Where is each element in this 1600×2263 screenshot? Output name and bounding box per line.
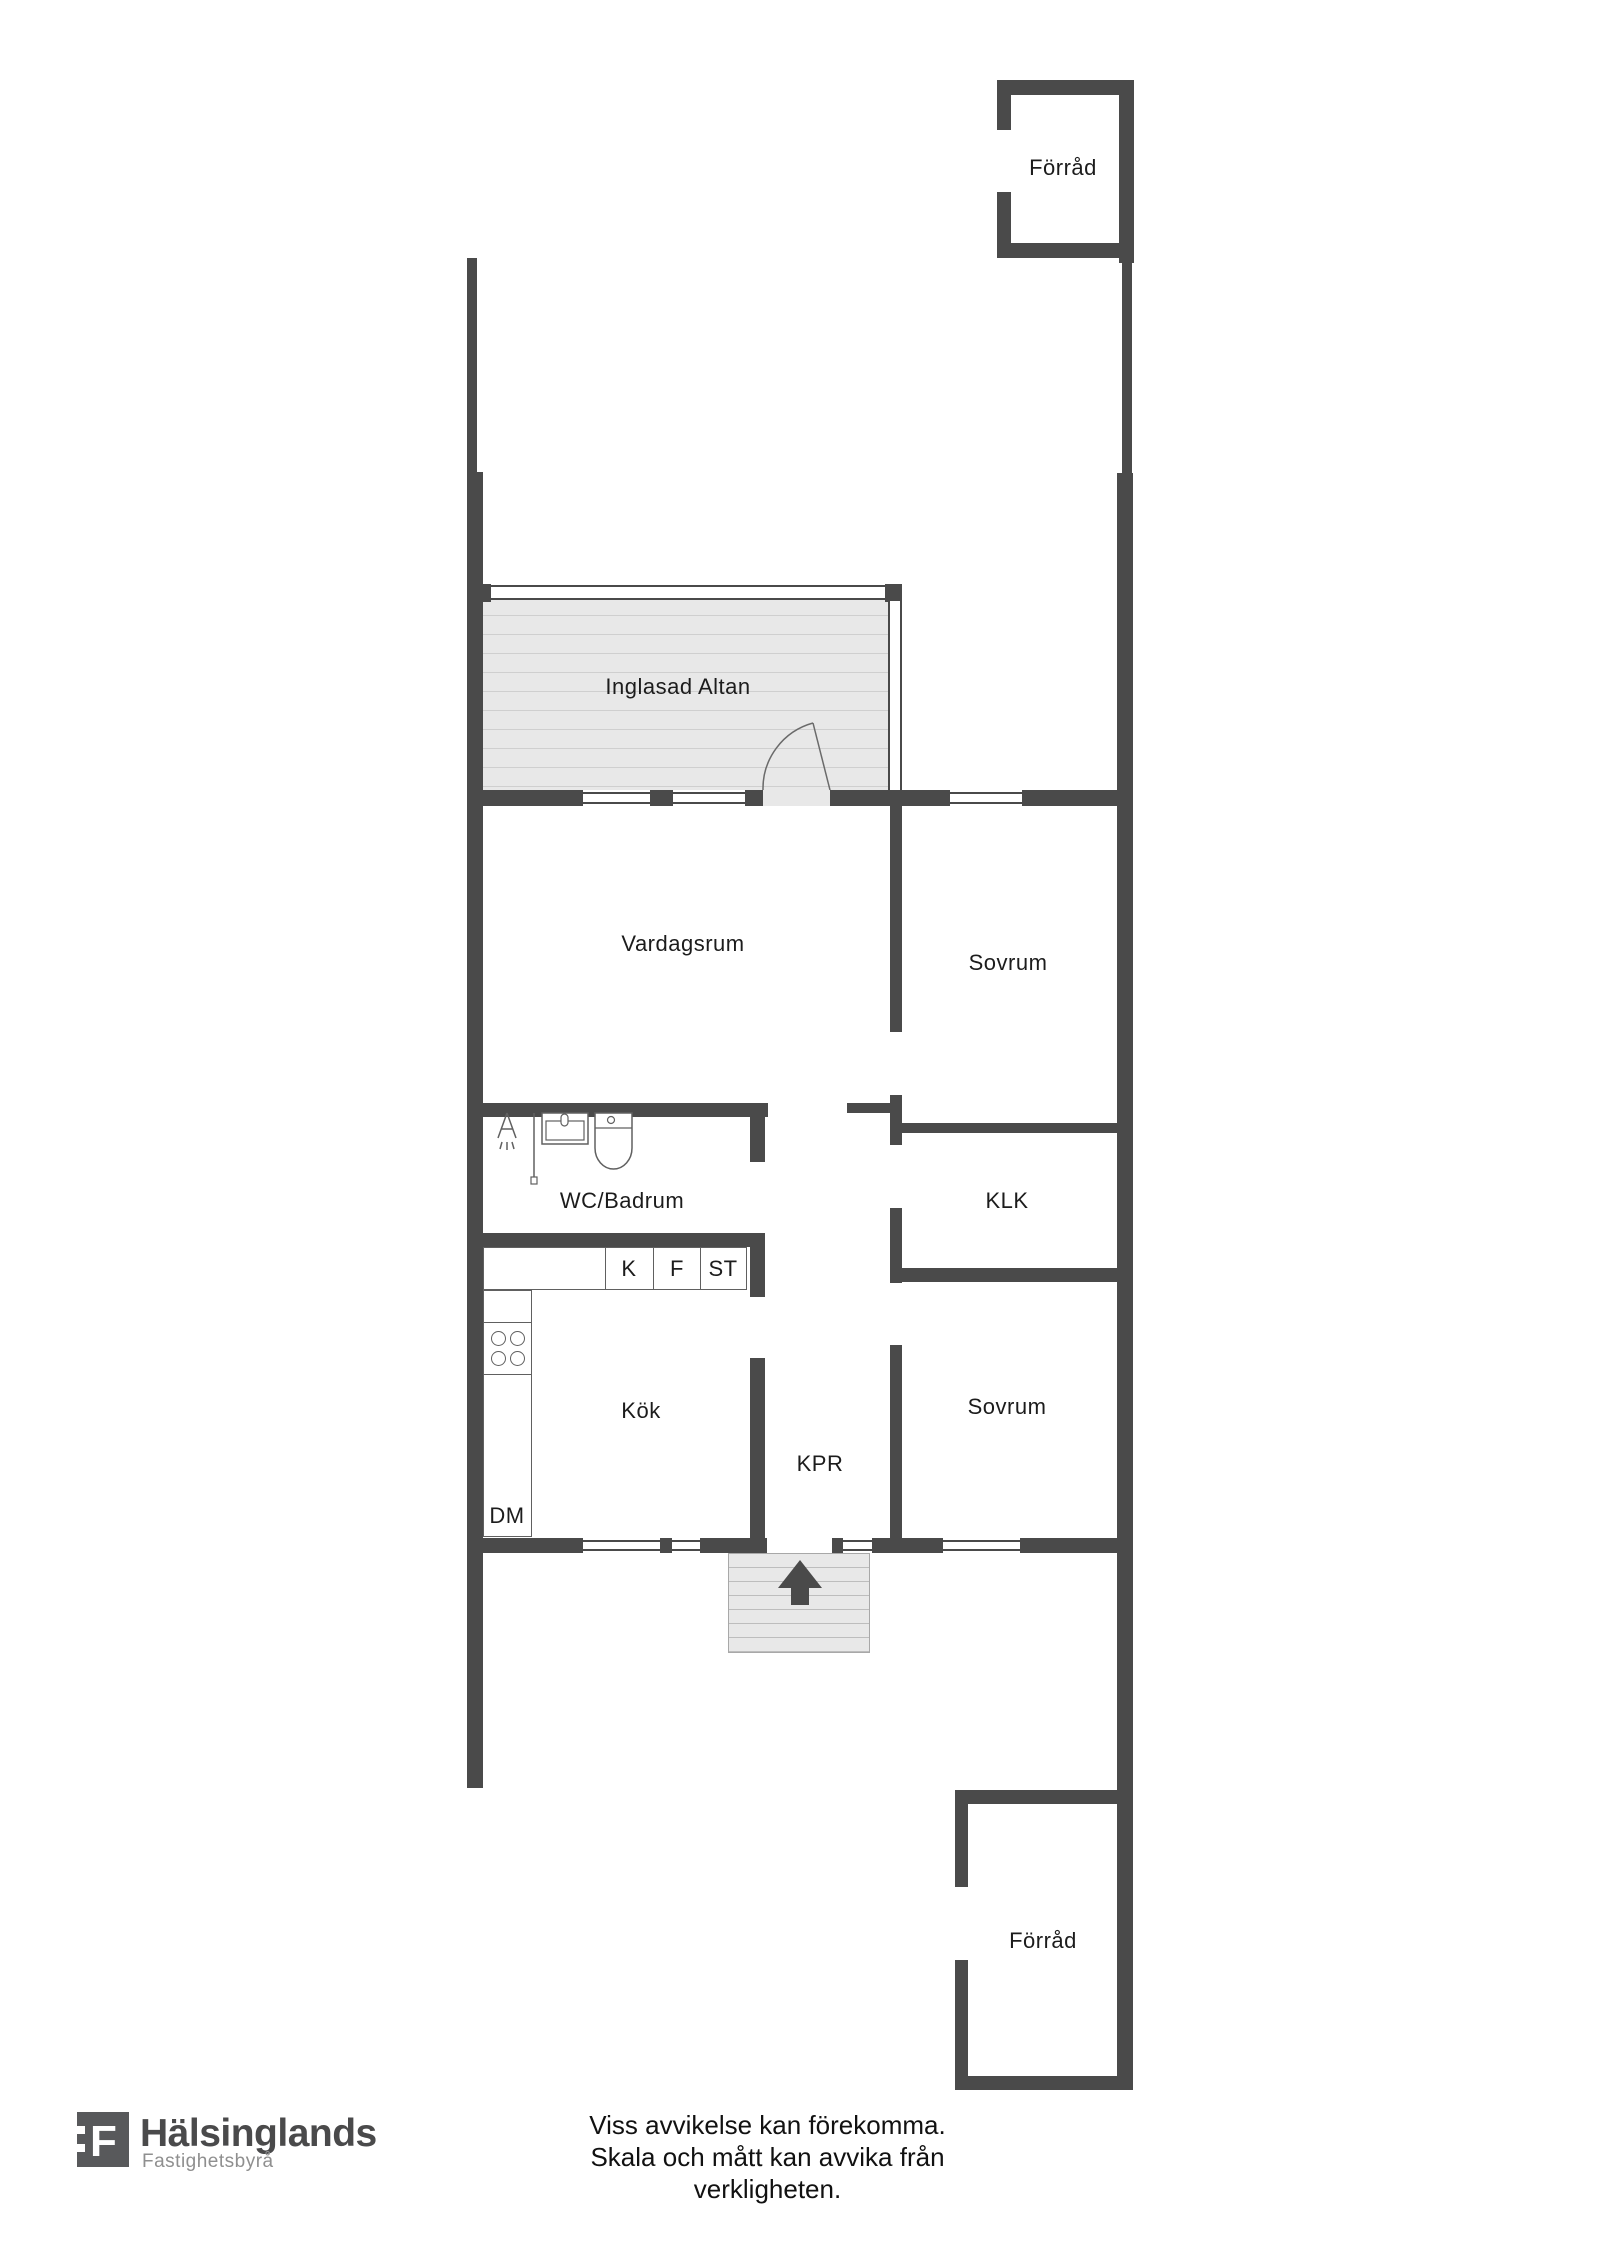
door-swing: [758, 718, 836, 796]
window: [583, 1540, 660, 1551]
wall: [890, 1095, 902, 1145]
appliance-label-st: ST: [708, 1256, 737, 1282]
appliance-label-f: F: [670, 1256, 684, 1282]
stove: [483, 1322, 532, 1375]
room-label-wc-badrum: WC/Badrum: [560, 1188, 684, 1214]
kitchen-counter: [483, 1247, 606, 1290]
brand-logo-notch: [77, 2144, 85, 2152]
wall: [1020, 1538, 1133, 1553]
wall: [473, 584, 491, 602]
wall: [892, 1268, 1127, 1282]
room-label-sovrum-1: Sovrum: [969, 950, 1048, 976]
wall: [955, 1790, 968, 1887]
disclaimer-line-1: Viss avvikelse kan förekomma.: [515, 2109, 1020, 2141]
window: [843, 1540, 872, 1551]
wall: [1119, 80, 1134, 263]
wall: [997, 243, 1133, 258]
wall: [467, 472, 483, 1788]
room-label-sovrum-2: Sovrum: [968, 1394, 1047, 1420]
room-label-kok: Kök: [621, 1398, 660, 1424]
window: [673, 792, 745, 804]
window: [483, 585, 888, 600]
wall: [890, 1208, 902, 1283]
wall: [467, 790, 583, 806]
wall: [467, 1233, 763, 1247]
entrance-arrow-icon: [778, 1560, 822, 1588]
wall: [750, 1358, 765, 1540]
wall: [898, 1123, 1117, 1133]
room-label-forrad-top: Förråd: [1029, 155, 1097, 181]
wall: [467, 1538, 583, 1553]
wall: [872, 1538, 943, 1553]
window: [943, 1540, 1020, 1551]
wall: [955, 1960, 968, 2090]
wall: [832, 1538, 843, 1553]
wall: [1022, 790, 1133, 806]
appliance-label-dm: DM: [489, 1503, 524, 1529]
brand-logo-notch: [77, 2126, 85, 2134]
window: [888, 601, 902, 791]
floor-plan: Förråd Inglasad Altan Vardagsrum Sovrum …: [0, 0, 1600, 2263]
stove-burner: [491, 1351, 506, 1366]
room-label-vardagsrum: Vardagsrum: [621, 931, 744, 957]
wall: [997, 80, 1133, 95]
stove-burner: [510, 1331, 525, 1346]
wall: [955, 2076, 1133, 2090]
wall: [890, 1345, 902, 1543]
window: [583, 792, 660, 804]
wall: [750, 1103, 765, 1162]
stove-burner: [491, 1331, 506, 1346]
disclaimer-text: Viss avvikelse kan förekomma. Skala och …: [515, 2109, 1020, 2205]
wall: [830, 790, 950, 806]
wall: [847, 1103, 890, 1113]
wall: [1122, 262, 1132, 474]
room-label-klk: KLK: [985, 1188, 1028, 1214]
entrance-arrow-stem: [791, 1587, 809, 1605]
wall: [650, 790, 673, 806]
disclaimer-line-2: Skala och mått kan avvika från verklighe…: [515, 2141, 1020, 2205]
brand-subtitle: Fastighetsbyrå: [142, 2151, 274, 2173]
brand-name: Hälsinglands: [140, 2112, 377, 2156]
brand-logo-letter: F: [90, 2117, 117, 2167]
window: [950, 792, 1022, 804]
room-label-forrad-bottom: Förråd: [1009, 1928, 1077, 1954]
bathroom-fixtures: [490, 1105, 640, 1190]
wall: [660, 1538, 672, 1553]
wall: [890, 806, 902, 1032]
room-label-kpr: KPR: [797, 1451, 844, 1477]
wall: [750, 1233, 765, 1297]
wall: [955, 1790, 1133, 1804]
appliance-label-k: K: [621, 1256, 636, 1282]
room-label-inglasad-altan: Inglasad Altan: [605, 674, 750, 700]
wall: [700, 1538, 767, 1553]
stove-burner: [510, 1351, 525, 1366]
wall: [885, 584, 902, 602]
window: [672, 1540, 700, 1551]
wall: [997, 80, 1011, 130]
wall: [467, 258, 477, 473]
